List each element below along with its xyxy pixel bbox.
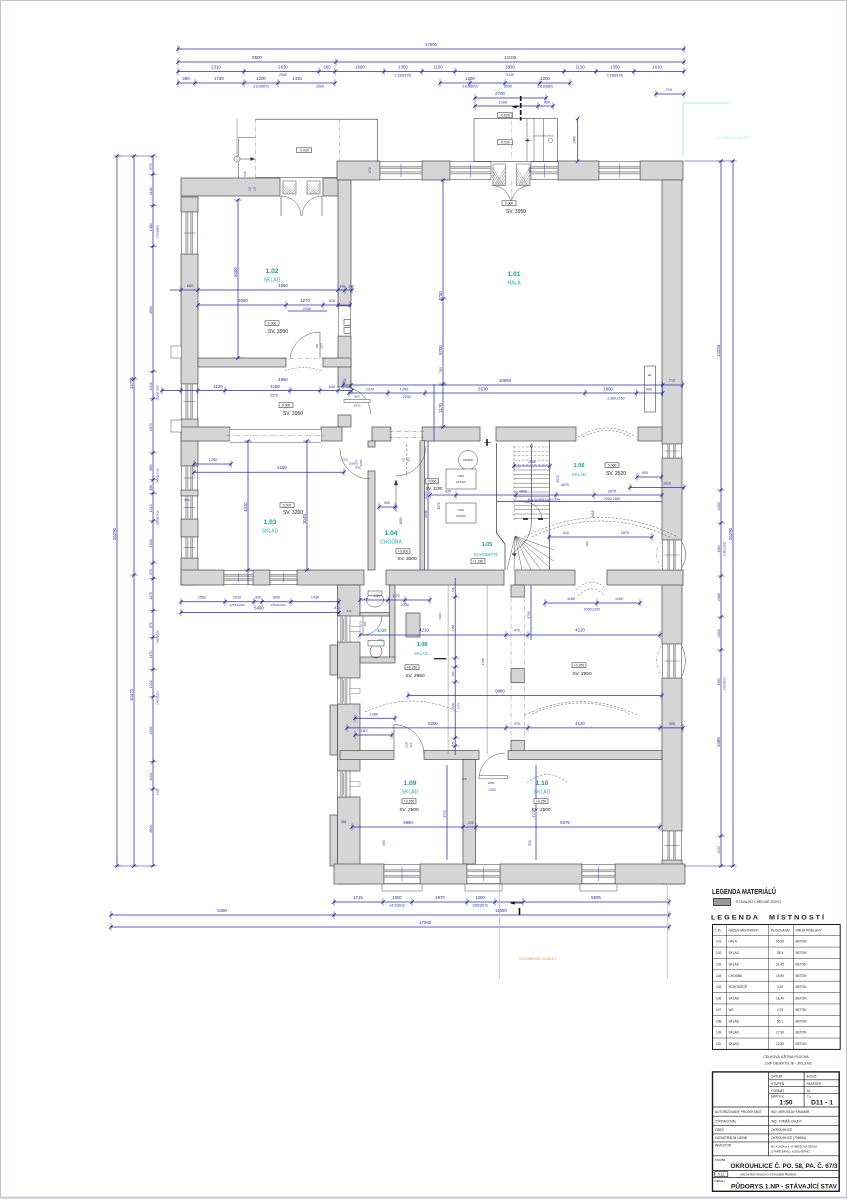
svg-text:460: 460 (528, 167, 532, 173)
svg-text:ARCHITEKTONICKO-STAVEBNÍ ŘEŠEN: ARCHITEKTONICKO-STAVEBNÍ ŘEŠENÍ (740, 1172, 796, 1177)
svg-text:4560: 4560 (149, 306, 153, 314)
svg-text:109: 109 (716, 1031, 722, 1035)
svg-text:1200: 1200 (465, 76, 475, 81)
svg-text:4250: 4250 (424, 491, 428, 499)
svg-text:670: 670 (149, 163, 153, 169)
svg-text:1970: 1970 (321, 343, 324, 349)
svg-text:STÁVAJÍCÍ CIHELNÉ ZDIVO: STÁVAJÍCÍ CIHELNÉ ZDIVO (736, 899, 782, 904)
svg-text:670: 670 (368, 167, 372, 173)
svg-text:SV. 2500: SV. 2500 (531, 807, 551, 813)
svg-text:2.330(870): 2.330(870) (607, 74, 624, 78)
svg-text:2310: 2310 (211, 65, 221, 70)
svg-text:1120: 1120 (575, 65, 585, 70)
svg-text:4120: 4120 (575, 721, 585, 726)
svg-text:STUPEŇ: STUPEŇ (771, 1082, 785, 1086)
svg-text:102: 102 (716, 951, 722, 955)
svg-text:+1.180: +1.180 (473, 560, 484, 564)
svg-text:1.02: 1.02 (266, 268, 279, 275)
svg-text:1180: 1180 (567, 597, 575, 601)
svg-text:3170: 3170 (438, 403, 443, 413)
svg-text:PLOCHA M2: PLOCHA M2 (771, 929, 790, 933)
svg-text:SKLAD: SKLAD (729, 997, 740, 1001)
svg-text:0.11: 0.11 (718, 1173, 724, 1177)
svg-text:900: 900 (363, 621, 367, 626)
svg-text:1.04: 1.04 (385, 530, 398, 537)
svg-text:900: 900 (669, 722, 675, 726)
svg-text:900: 900 (355, 395, 360, 399)
svg-text:340: 340 (339, 285, 345, 289)
svg-text:3960: 3960 (403, 820, 413, 825)
svg-text:4435: 4435 (424, 510, 428, 518)
svg-text:2,75: 2,75 (777, 1008, 783, 1012)
svg-text:1750(980): 1750(980) (156, 225, 160, 239)
svg-text:1250: 1250 (400, 387, 410, 392)
svg-text:SV. 3200: SV. 3200 (426, 486, 444, 491)
svg-text:1150: 1150 (433, 65, 443, 70)
svg-text:150: 150 (248, 186, 252, 191)
svg-text:1.01: 1.01 (508, 271, 521, 278)
svg-text:BETON: BETON (796, 1042, 808, 1046)
svg-text:D11 - 1: D11 - 1 (811, 1101, 834, 1107)
svg-text:SV. 3000: SV. 3000 (397, 556, 417, 562)
svg-text:AUTORIZOVANÝ PROJEKTANT: AUTORIZOVANÝ PROJEKTANT (715, 1110, 762, 1114)
svg-text:1430: 1430 (292, 76, 302, 81)
svg-text:PŮDORYS 1.NP - STÁVAJÍCÍ STAV: PŮDORYS 1.NP - STÁVAJÍCÍ STAV (731, 1181, 837, 1191)
svg-text:2000: 2000 (504, 85, 512, 89)
svg-text:2300: 2300 (156, 788, 160, 795)
svg-text:100: 100 (348, 285, 354, 289)
svg-text:95,90: 95,90 (776, 940, 784, 944)
svg-text:700: 700 (403, 457, 406, 462)
svg-text:4815: 4815 (591, 510, 595, 517)
svg-text:10950: 10950 (499, 378, 512, 383)
svg-text:STARÉ BRNO, 60200 BRNO: STARÉ BRNO, 60200 BRNO (771, 1149, 810, 1154)
svg-text:2200: 2200 (488, 788, 495, 792)
svg-text:470: 470 (514, 629, 520, 633)
svg-text:345: 345 (451, 587, 455, 592)
svg-text:+0.250: +0.250 (574, 664, 585, 668)
svg-text:2630: 2630 (278, 65, 288, 70)
svg-text:0.000: 0.000 (505, 202, 514, 206)
svg-text:1200: 1200 (540, 76, 550, 81)
svg-text:11590: 11590 (495, 908, 507, 913)
svg-text:1000(1720): 1000(1720) (156, 468, 160, 483)
svg-text:2270: 2270 (270, 394, 278, 398)
svg-text:90,5 OSTĚNÍ DO SKLEPA: 90,5 OSTĚNÍ DO SKLEPA (528, 497, 561, 502)
svg-text:1000: 1000 (149, 680, 153, 688)
svg-text:SKLAD: SKLAD (729, 962, 740, 966)
svg-text:780: 780 (439, 367, 443, 373)
svg-text:2110(880): 2110(880) (537, 85, 552, 89)
svg-text:1610: 1610 (652, 65, 662, 70)
svg-text:SOUSEDNÍ OBJEKT: SOUSEDNÍ OBJEKT (519, 956, 557, 961)
svg-text:28,5: 28,5 (777, 951, 783, 955)
svg-text:SKLAD: SKLAD (729, 1031, 740, 1035)
svg-text:540: 540 (243, 171, 247, 176)
svg-text:1020(1700): 1020(1700) (156, 385, 160, 400)
svg-text:101: 101 (716, 940, 722, 944)
svg-text:106: 106 (716, 997, 722, 1001)
svg-text:WC: WC (378, 638, 384, 642)
svg-text:220: 220 (468, 821, 474, 825)
svg-text:1690: 1690 (355, 65, 365, 70)
svg-text:-0.030: -0.030 (299, 149, 309, 153)
svg-text:+0.250: +0.250 (407, 666, 418, 670)
svg-text:1.07: 1.07 (378, 628, 387, 633)
svg-text:1530: 1530 (149, 539, 153, 547)
svg-text:110: 110 (716, 1042, 721, 1046)
svg-text:6075: 6075 (560, 820, 570, 825)
svg-text:4800: 4800 (519, 490, 527, 494)
svg-text:107: 107 (716, 1008, 722, 1012)
svg-text:0.000: 0.000 (268, 322, 277, 326)
svg-text:VYPRACOVAL: VYPRACOVAL (715, 1119, 737, 1123)
svg-text:SV. 2500: SV. 2500 (399, 807, 419, 813)
svg-text:4/2025: 4/2025 (807, 1074, 817, 1078)
svg-text:OBSAH: OBSAH (715, 1179, 725, 1183)
svg-text:590: 590 (528, 840, 532, 846)
svg-text:0.000: 0.000 (428, 480, 437, 484)
svg-text:2110(870): 2110(870) (462, 85, 477, 89)
svg-text:1000: 1000 (149, 772, 153, 780)
svg-text:375: 375 (451, 741, 455, 746)
svg-text:1000(1700): 1000(1700) (156, 510, 160, 525)
svg-text:1000: 1000 (475, 895, 485, 900)
svg-text:10470: 10470 (129, 688, 134, 701)
svg-text:1110: 1110 (360, 729, 367, 733)
svg-text:1200: 1200 (256, 76, 266, 81)
svg-text:1.08: 1.08 (417, 642, 428, 648)
svg-text:SV. 2950: SV. 2950 (572, 671, 592, 677)
svg-text:BETON: BETON (796, 974, 808, 978)
svg-text:3485: 3485 (716, 737, 721, 747)
svg-text:KATASTRÁLNÍ ÚZEMÍ: KATASTRÁLNÍ ÚZEMÍ (715, 1135, 747, 1140)
svg-text:1170: 1170 (392, 594, 399, 598)
svg-text:SKLAD: SKLAD (262, 529, 279, 535)
svg-text:BETON: BETON (796, 1031, 808, 1035)
svg-text:17600: 17600 (425, 42, 438, 47)
svg-text:6150: 6150 (277, 465, 287, 470)
svg-text:0.000: 0.000 (282, 404, 291, 408)
svg-text:1290: 1290 (209, 457, 219, 462)
svg-text:BETON: BETON (796, 1019, 808, 1023)
svg-text:1720: 1720 (214, 76, 224, 81)
svg-text:1715: 1715 (353, 895, 363, 900)
svg-text:810: 810 (347, 609, 352, 613)
svg-text:550: 550 (384, 501, 390, 505)
svg-text:BETON: BETON (796, 962, 808, 966)
svg-text:MĚŘÍTKO: MĚŘÍTKO (771, 1094, 785, 1099)
svg-text:DRUH PODLAHY: DRUH PODLAHY (796, 929, 823, 933)
svg-text:1560: 1560 (717, 545, 721, 552)
svg-text:1.03: 1.03 (264, 519, 277, 526)
svg-text:620: 620 (329, 299, 335, 303)
svg-text:Č.s: Č.s (807, 1094, 812, 1099)
svg-text:4960: 4960 (278, 377, 288, 382)
svg-text:305: 305 (462, 777, 467, 781)
svg-text:1370: 1370 (366, 388, 374, 392)
svg-text:5130: 5130 (506, 73, 514, 77)
svg-text:2100: 2100 (499, 100, 509, 105)
svg-text:INVESTOR: INVESTOR (715, 1144, 732, 1148)
svg-text:HALA: HALA (507, 281, 521, 287)
svg-text:5070: 5070 (556, 475, 560, 482)
svg-text:1560: 1560 (717, 678, 721, 685)
svg-text:1900: 1900 (603, 387, 613, 392)
svg-text:WC: WC (729, 1008, 735, 1012)
svg-text:1970: 1970 (435, 895, 445, 900)
svg-text:5200: 5200 (233, 267, 238, 277)
svg-text:1350: 1350 (610, 65, 620, 70)
svg-text:SV. 3950: SV. 3950 (268, 329, 288, 335)
svg-text:17,90: 17,90 (776, 1031, 784, 1035)
svg-text:1270: 1270 (300, 298, 310, 303)
svg-text:2200: 2200 (403, 394, 413, 399)
svg-text:590: 590 (382, 840, 386, 846)
svg-text:2875: 2875 (621, 531, 629, 535)
svg-text:12100: 12100 (504, 55, 517, 60)
svg-text:1000: 1000 (717, 502, 721, 510)
svg-text:1000: 1000 (149, 382, 153, 390)
svg-text:1000: 1000 (392, 895, 402, 900)
svg-text:1:50: 1:50 (779, 1100, 792, 1107)
svg-text:5530: 5530 (478, 387, 488, 392)
svg-text:ING. TOMÁŠ CHUDÝ: ING. TOMÁŠ CHUDÝ (771, 1118, 803, 1123)
svg-text:1010: 1010 (233, 596, 241, 600)
svg-text:980: 980 (149, 464, 153, 470)
svg-text:SCHODIŠTĚ: SCHODIŠTĚ (729, 984, 748, 989)
svg-text:OBEC: OBEC (715, 1128, 725, 1132)
svg-text:1400(630): 1400(630) (156, 691, 160, 705)
svg-text:2480: 2480 (717, 593, 721, 601)
svg-text:4410: 4410 (243, 502, 248, 512)
svg-text:1400(630): 1400(630) (156, 630, 160, 644)
svg-text:103: 103 (716, 962, 722, 966)
svg-text:BETON: BETON (796, 951, 808, 955)
svg-text:3180: 3180 (270, 384, 280, 389)
svg-text:470: 470 (514, 722, 520, 726)
svg-text:2.300,2150: 2.300,2150 (607, 397, 624, 401)
svg-text:+0.250: +0.250 (404, 800, 415, 804)
svg-text:2350: 2350 (401, 603, 409, 607)
svg-text:NÁZEV MÍSTNOSTI: NÁZEV MÍSTNOSTI (729, 929, 759, 933)
svg-text:LEGENDA MATERIÁLŮ: LEGENDA MATERIÁLŮ (712, 886, 776, 896)
svg-text:CELKOVÁ UŽITNÁ PLOCHA: CELKOVÁ UŽITNÁ PLOCHA (763, 1054, 809, 1059)
svg-text:3075: 3075 (437, 502, 441, 509)
svg-text:5500: 5500 (252, 55, 262, 60)
svg-text:31,45: 31,45 (776, 962, 784, 966)
svg-text:5490: 5490 (254, 606, 264, 611)
svg-text:ING. MIROSLAV KRAMÁŘ: ING. MIROSLAV KRAMÁŘ (771, 1109, 810, 1114)
svg-text:1970: 1970 (408, 457, 411, 463)
svg-text:1000: 1000 (717, 846, 721, 854)
svg-text:8700: 8700 (438, 345, 443, 355)
svg-text:SV. 3950: SV. 3950 (283, 411, 303, 417)
svg-text:9880: 9880 (495, 689, 505, 694)
svg-text:B1 KLIMA a.s. HYBEŠOVA 256/18: B1 KLIMA a.s. HYBEŠOVA 256/18 (771, 1144, 817, 1149)
svg-text:1480(1050): 1480(1050) (723, 542, 727, 557)
svg-text:1000: 1000 (272, 596, 280, 600)
svg-text:835: 835 (445, 490, 451, 494)
svg-text:15,90: 15,90 (776, 974, 784, 978)
svg-text:1430: 1430 (311, 596, 319, 600)
svg-text:SOUSEDNÍ OBJEKT: SOUSEDNÍ OBJEKT (714, 135, 752, 140)
svg-text:BETON: BETON (796, 997, 808, 1001)
svg-text:OK01: OK01 (458, 508, 465, 512)
svg-text:OPK222: OPK222 (456, 480, 466, 484)
svg-text:L E G E N D A: L E G E N D A (711, 915, 758, 922)
svg-text:120: 120 (253, 186, 257, 191)
svg-text:SV. 3200: SV. 3200 (283, 510, 303, 516)
svg-text:1.NP OBJEKTU JE - 300,3 M2: 1.NP OBJEKTU JE - 300,3 M2 (764, 1062, 812, 1066)
svg-text:STAVBA: STAVBA (715, 1158, 726, 1162)
svg-text:1220: 1220 (342, 458, 349, 462)
svg-text:4120: 4120 (575, 628, 585, 633)
svg-text:2175: 2175 (457, 702, 461, 709)
svg-text:HALA: HALA (729, 940, 738, 944)
svg-text:Č.M.: Č.M. (715, 928, 722, 933)
svg-text:CHODBA: CHODBA (729, 974, 744, 978)
svg-text:SKLAD: SKLAD (264, 278, 281, 284)
svg-text:SKLAD: SKLAD (402, 790, 419, 796)
svg-text:SV. 2950: SV. 2950 (405, 673, 425, 679)
svg-text:2130: 2130 (405, 742, 409, 748)
svg-text:SKLAD: SKLAD (534, 790, 551, 796)
svg-text:1750(1030): 1750(1030) (229, 603, 244, 607)
svg-text:900: 900 (316, 343, 319, 348)
svg-text:BETON: BETON (796, 985, 808, 989)
svg-text:0.000: 0.000 (283, 504, 292, 508)
svg-text:2x2140(2)880-3(260): 2x2140(2)880-3(260) (533, 136, 554, 138)
svg-text:1110: 1110 (373, 594, 380, 598)
svg-text:OKROUHLICE: OKROUHLICE (771, 1128, 792, 1132)
svg-text:1.10: 1.10 (536, 780, 549, 787)
svg-text:SKLAD: SKLAD (572, 472, 586, 477)
svg-text:EL: EL (648, 373, 652, 377)
svg-text:1750(1030): 1750(1030) (270, 603, 285, 607)
svg-text:2000,2100: 2000,2100 (584, 608, 600, 612)
svg-text:A1: A1 (807, 1089, 811, 1093)
svg-text:1970: 1970 (354, 404, 361, 408)
svg-text:2960: 2960 (438, 612, 442, 619)
svg-text:2000: 2000 (316, 85, 324, 89)
svg-text:5795: 5795 (527, 611, 531, 618)
svg-text:DATUM: DATUM (771, 1074, 782, 1078)
svg-text:480: 480 (451, 671, 455, 676)
svg-text:4675: 4675 (561, 483, 569, 487)
svg-text:2.330(870): 2.330(870) (395, 74, 412, 78)
svg-text:910: 910 (409, 742, 413, 747)
svg-text:1410(810): 1410(810) (389, 904, 405, 908)
svg-text:SKLAD: SKLAD (729, 951, 740, 955)
svg-text:1.05: 1.05 (482, 542, 493, 548)
svg-text:4750: 4750 (438, 291, 443, 301)
svg-text:490: 490 (149, 485, 153, 491)
svg-text:BETON: BETON (796, 940, 808, 944)
svg-text:1170: 1170 (149, 651, 153, 659)
svg-text:SV. 3950: SV. 3950 (506, 209, 526, 215)
svg-text:1970: 1970 (359, 621, 363, 627)
svg-text:570: 570 (149, 569, 153, 575)
svg-text:2000,2360: 2000,2360 (604, 497, 620, 501)
svg-text:56,1: 56,1 (777, 1019, 783, 1023)
svg-text:4210: 4210 (419, 628, 429, 633)
svg-text:3060: 3060 (238, 298, 248, 303)
svg-text:1.09: 1.09 (404, 780, 417, 787)
svg-text:OKROUHLICE Č. PO. 58, PA. Č. 6: OKROUHLICE Č. PO. 58, PA. Č. 67/3 (731, 1161, 838, 1170)
svg-text:OK01: OK01 (458, 474, 465, 478)
svg-text:1560: 1560 (198, 596, 206, 600)
svg-text:600: 600 (642, 471, 648, 475)
svg-text:13325: 13325 (716, 344, 721, 357)
svg-text:+0.250: +0.250 (536, 800, 547, 804)
svg-text:3,30: 3,30 (777, 985, 783, 989)
svg-text:640: 640 (329, 385, 335, 389)
svg-text:17080: 17080 (419, 920, 432, 925)
svg-text:CHODBA: CHODBA (380, 540, 402, 546)
svg-text:900: 900 (646, 388, 652, 392)
svg-text:5290: 5290 (428, 721, 438, 726)
svg-text:2800: 2800 (149, 825, 153, 833)
svg-text:1970: 1970 (149, 423, 153, 431)
svg-text:25290: 25290 (112, 527, 117, 540)
svg-text:SKLAD: SKLAD (729, 1042, 740, 1046)
svg-text:-0.620: -0.620 (500, 114, 510, 118)
svg-text:2980: 2980 (279, 73, 287, 77)
svg-text:OKROUHLICE (709654): OKROUHLICE (709654) (771, 1136, 806, 1140)
svg-text:1180: 1180 (528, 460, 536, 464)
svg-text:0.000: 0.000 (608, 464, 617, 468)
svg-text:18,40: 18,40 (776, 997, 784, 1001)
svg-text:5490: 5490 (217, 908, 227, 913)
svg-text:PASPORT: PASPORT (807, 1082, 822, 1086)
svg-text:465: 465 (341, 820, 347, 824)
svg-text:25290: 25290 (728, 527, 733, 540)
svg-text:710: 710 (666, 87, 673, 92)
svg-text:SKLAD: SKLAD (414, 651, 428, 656)
svg-text:970: 970 (149, 622, 153, 628)
svg-text:1170: 1170 (149, 592, 153, 600)
svg-text:4960: 4960 (278, 283, 288, 288)
svg-text:1160: 1160 (615, 597, 623, 601)
svg-text:+0.200: +0.200 (398, 550, 409, 554)
svg-text:2360: 2360 (149, 726, 153, 734)
svg-text:1350: 1350 (398, 65, 408, 70)
svg-text:590: 590 (182, 76, 190, 81)
svg-text:1010: 1010 (663, 482, 671, 486)
svg-text:2875: 2875 (608, 489, 618, 494)
svg-text:180: 180 (585, 541, 589, 546)
svg-text:560: 560 (323, 65, 331, 70)
svg-text:3830: 3830 (505, 65, 515, 70)
svg-text:2100: 2100 (303, 307, 311, 311)
svg-text:M Í S T N O S T Í: M Í S T N O S T Í (769, 913, 825, 922)
svg-text:104: 104 (716, 974, 722, 978)
svg-text:SV. 2520: SV. 2520 (606, 471, 626, 477)
svg-text:1010: 1010 (149, 504, 153, 512)
svg-text:2200: 2200 (359, 459, 363, 466)
svg-text:710: 710 (669, 379, 675, 383)
svg-text:650: 650 (187, 283, 194, 288)
svg-text:2110(870): 2110(870) (253, 85, 268, 89)
svg-text:105: 105 (716, 985, 722, 989)
svg-text:350: 350 (343, 378, 347, 384)
svg-text:600: 600 (544, 101, 550, 105)
svg-text:SCHODIŠTĚ: SCHODIŠTĚ (474, 552, 499, 557)
svg-text:-0.030: -0.030 (500, 141, 510, 145)
svg-text:1480: 1480 (149, 223, 153, 231)
svg-text:1270: 1270 (355, 459, 359, 466)
